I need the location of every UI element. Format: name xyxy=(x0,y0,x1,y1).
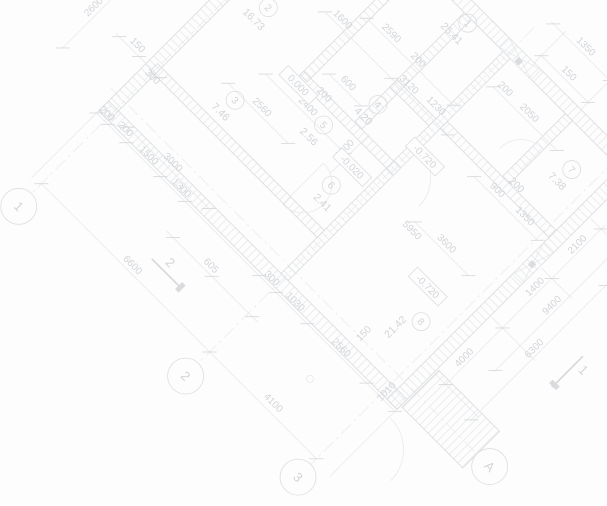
dim-label: 605 xyxy=(201,256,221,276)
elevation-markers: 0.000 -0.020 -0.720 -0.720 xyxy=(243,38,511,306)
elevation-marker: -0.020 xyxy=(333,148,372,187)
svg-text:7: 7 xyxy=(565,164,577,176)
svg-text:21.42: 21.42 xyxy=(382,314,409,341)
dim-label: 9400 xyxy=(540,294,564,318)
svg-text:1: 1 xyxy=(576,362,592,378)
door-swing xyxy=(282,163,344,225)
svg-text:5: 5 xyxy=(317,120,329,132)
grid-bubble-1: 1 xyxy=(0,181,44,232)
room-stamp: 62.41 xyxy=(307,172,349,214)
dim-label: 150 xyxy=(559,64,579,84)
room-stamp: 216.73 xyxy=(240,0,283,33)
dim-label: 150 xyxy=(127,36,147,56)
grid-bubble-3: 3 xyxy=(273,452,324,503)
room-stamp: 37.46 xyxy=(209,85,248,124)
svg-text:2.56: 2.56 xyxy=(297,126,320,149)
grid-bubble-2: 2 xyxy=(160,351,211,402)
blueprint-drawing: 6600 4100 2600 150 300 200 200 1500 1300… xyxy=(0,0,607,506)
svg-text:8: 8 xyxy=(415,316,427,328)
svg-text:7.38: 7.38 xyxy=(545,170,568,193)
dim-label: 4100 xyxy=(261,392,285,416)
dim-label: 5950 xyxy=(400,219,424,243)
dim-label: 6600 xyxy=(120,254,144,278)
section-mark-1: 1 xyxy=(548,353,592,397)
svg-text:3: 3 xyxy=(290,469,306,485)
dim-label: 3600 xyxy=(434,232,458,256)
dim-label: 1350 xyxy=(574,35,598,59)
svg-text:2: 2 xyxy=(178,368,194,384)
chain-node xyxy=(305,374,315,384)
dim-label: 6300 xyxy=(523,337,547,361)
svg-text:3: 3 xyxy=(229,95,241,107)
dim-label: 150 xyxy=(354,324,374,344)
dim-label: 2590 xyxy=(379,22,403,46)
svg-text:A: A xyxy=(481,458,498,475)
room-stamp: 821.42 xyxy=(382,301,434,353)
dim-label: 2560 xyxy=(250,96,274,120)
elevation-marker: -0.720 xyxy=(408,267,447,306)
section-mark-2: 2 xyxy=(148,246,195,293)
svg-text:2: 2 xyxy=(262,2,274,14)
svg-text:6: 6 xyxy=(325,180,337,192)
rotated-plan: 6600 4100 2600 150 300 200 200 1500 1300… xyxy=(0,0,607,506)
dim-label: 200 xyxy=(495,80,515,100)
room-stamp: 77.38 xyxy=(545,155,584,194)
svg-text:1: 1 xyxy=(11,198,27,214)
dim-label: 2050 xyxy=(517,102,541,126)
door-swing xyxy=(360,418,422,480)
svg-text:2: 2 xyxy=(163,255,179,271)
walls xyxy=(99,0,607,471)
room-stamp: 52.56 xyxy=(297,110,336,149)
dim-label: 600 xyxy=(338,74,358,94)
